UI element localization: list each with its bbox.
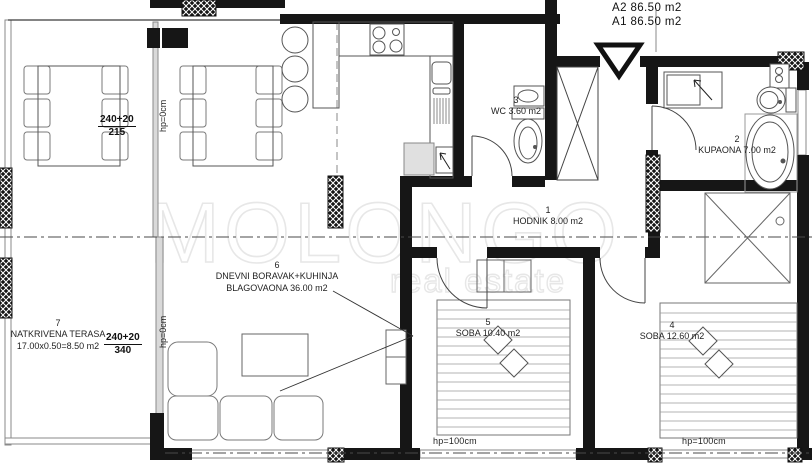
room-number: 7 [2,318,114,329]
kitchen-fixtures [282,22,453,178]
dimension-bottom: 215 [98,127,136,139]
room-label-soba5: 5 SOBA 10.40 m2 [428,317,548,340]
room-label-kupaona: 2 KUPAONA 7.00 m2 [672,134,802,157]
floor-plan-drawing: MOLONGO real estate [0,0,812,468]
room-name: WC 3.60 m2 [461,106,571,117]
room-name: KUPAONA 7.00 m2 [672,145,802,156]
room-label-terasa: 7 NATKRIVENA TERASA 17.00x0.50=8.50 m2 [2,318,114,352]
entrance-arrow-icon [598,45,640,76]
room-number: 4 [612,320,732,331]
room-number: 1 [488,205,608,216]
room-name: NATKRIVENA TERASA [2,329,114,340]
apartment-a2-label: A2 86.50 m2 [612,2,682,14]
dimension-terrace: 240+20 340 [104,332,142,356]
parapet-label-hp100-right: hp=100cm [682,436,726,448]
room-number: 2 [672,134,802,145]
room-name: DNEVNI BORAVAK+KUHINJA [197,271,357,282]
room-label-dnevni: 6 DNEVNI BORAVAK+KUHINJA BLAGOVAONA 36.0… [197,260,357,294]
dimension-dining: 240+20 215 [98,114,136,138]
bathroom-fixtures [664,64,797,192]
room-name: SOBA 10.40 m2 [428,328,548,339]
room-name-line2: BLAGOVAONA 36.00 m2 [197,283,357,294]
room-name: SOBA 12.60 m2 [612,331,732,342]
dimension-bottom: 340 [104,345,142,357]
watermark-tagline: real estate [390,262,566,299]
room-name-line2: 17.00x0.50=8.50 m2 [2,341,114,352]
sofa [168,330,406,440]
parapet-label-hp0-upper: hp=0cm [158,100,168,132]
room-label-hodnik: 1 HODNIK 8.00 m2 [488,205,608,228]
room-name: HODNIK 8.00 m2 [488,216,608,227]
dimension-top: 240+20 [98,114,136,127]
shaft [557,67,598,180]
room-number: 5 [428,317,548,328]
room-number: 3 [461,95,571,106]
dimension-top: 240+20 [104,332,142,345]
parapet-label-hp0-lower: hp=0cm [158,316,168,348]
apartment-a1-label: A1 86.50 m2 [612,16,682,28]
floor-plan: MOLONGO real estate [0,0,812,468]
room-label-wc: 3 WC 3.60 m2 [461,95,571,118]
room-label-soba4: 4 SOBA 12.60 m2 [612,320,732,343]
room-number: 6 [197,260,357,271]
parapet-label-hp100-left: hp=100cm [433,436,477,448]
